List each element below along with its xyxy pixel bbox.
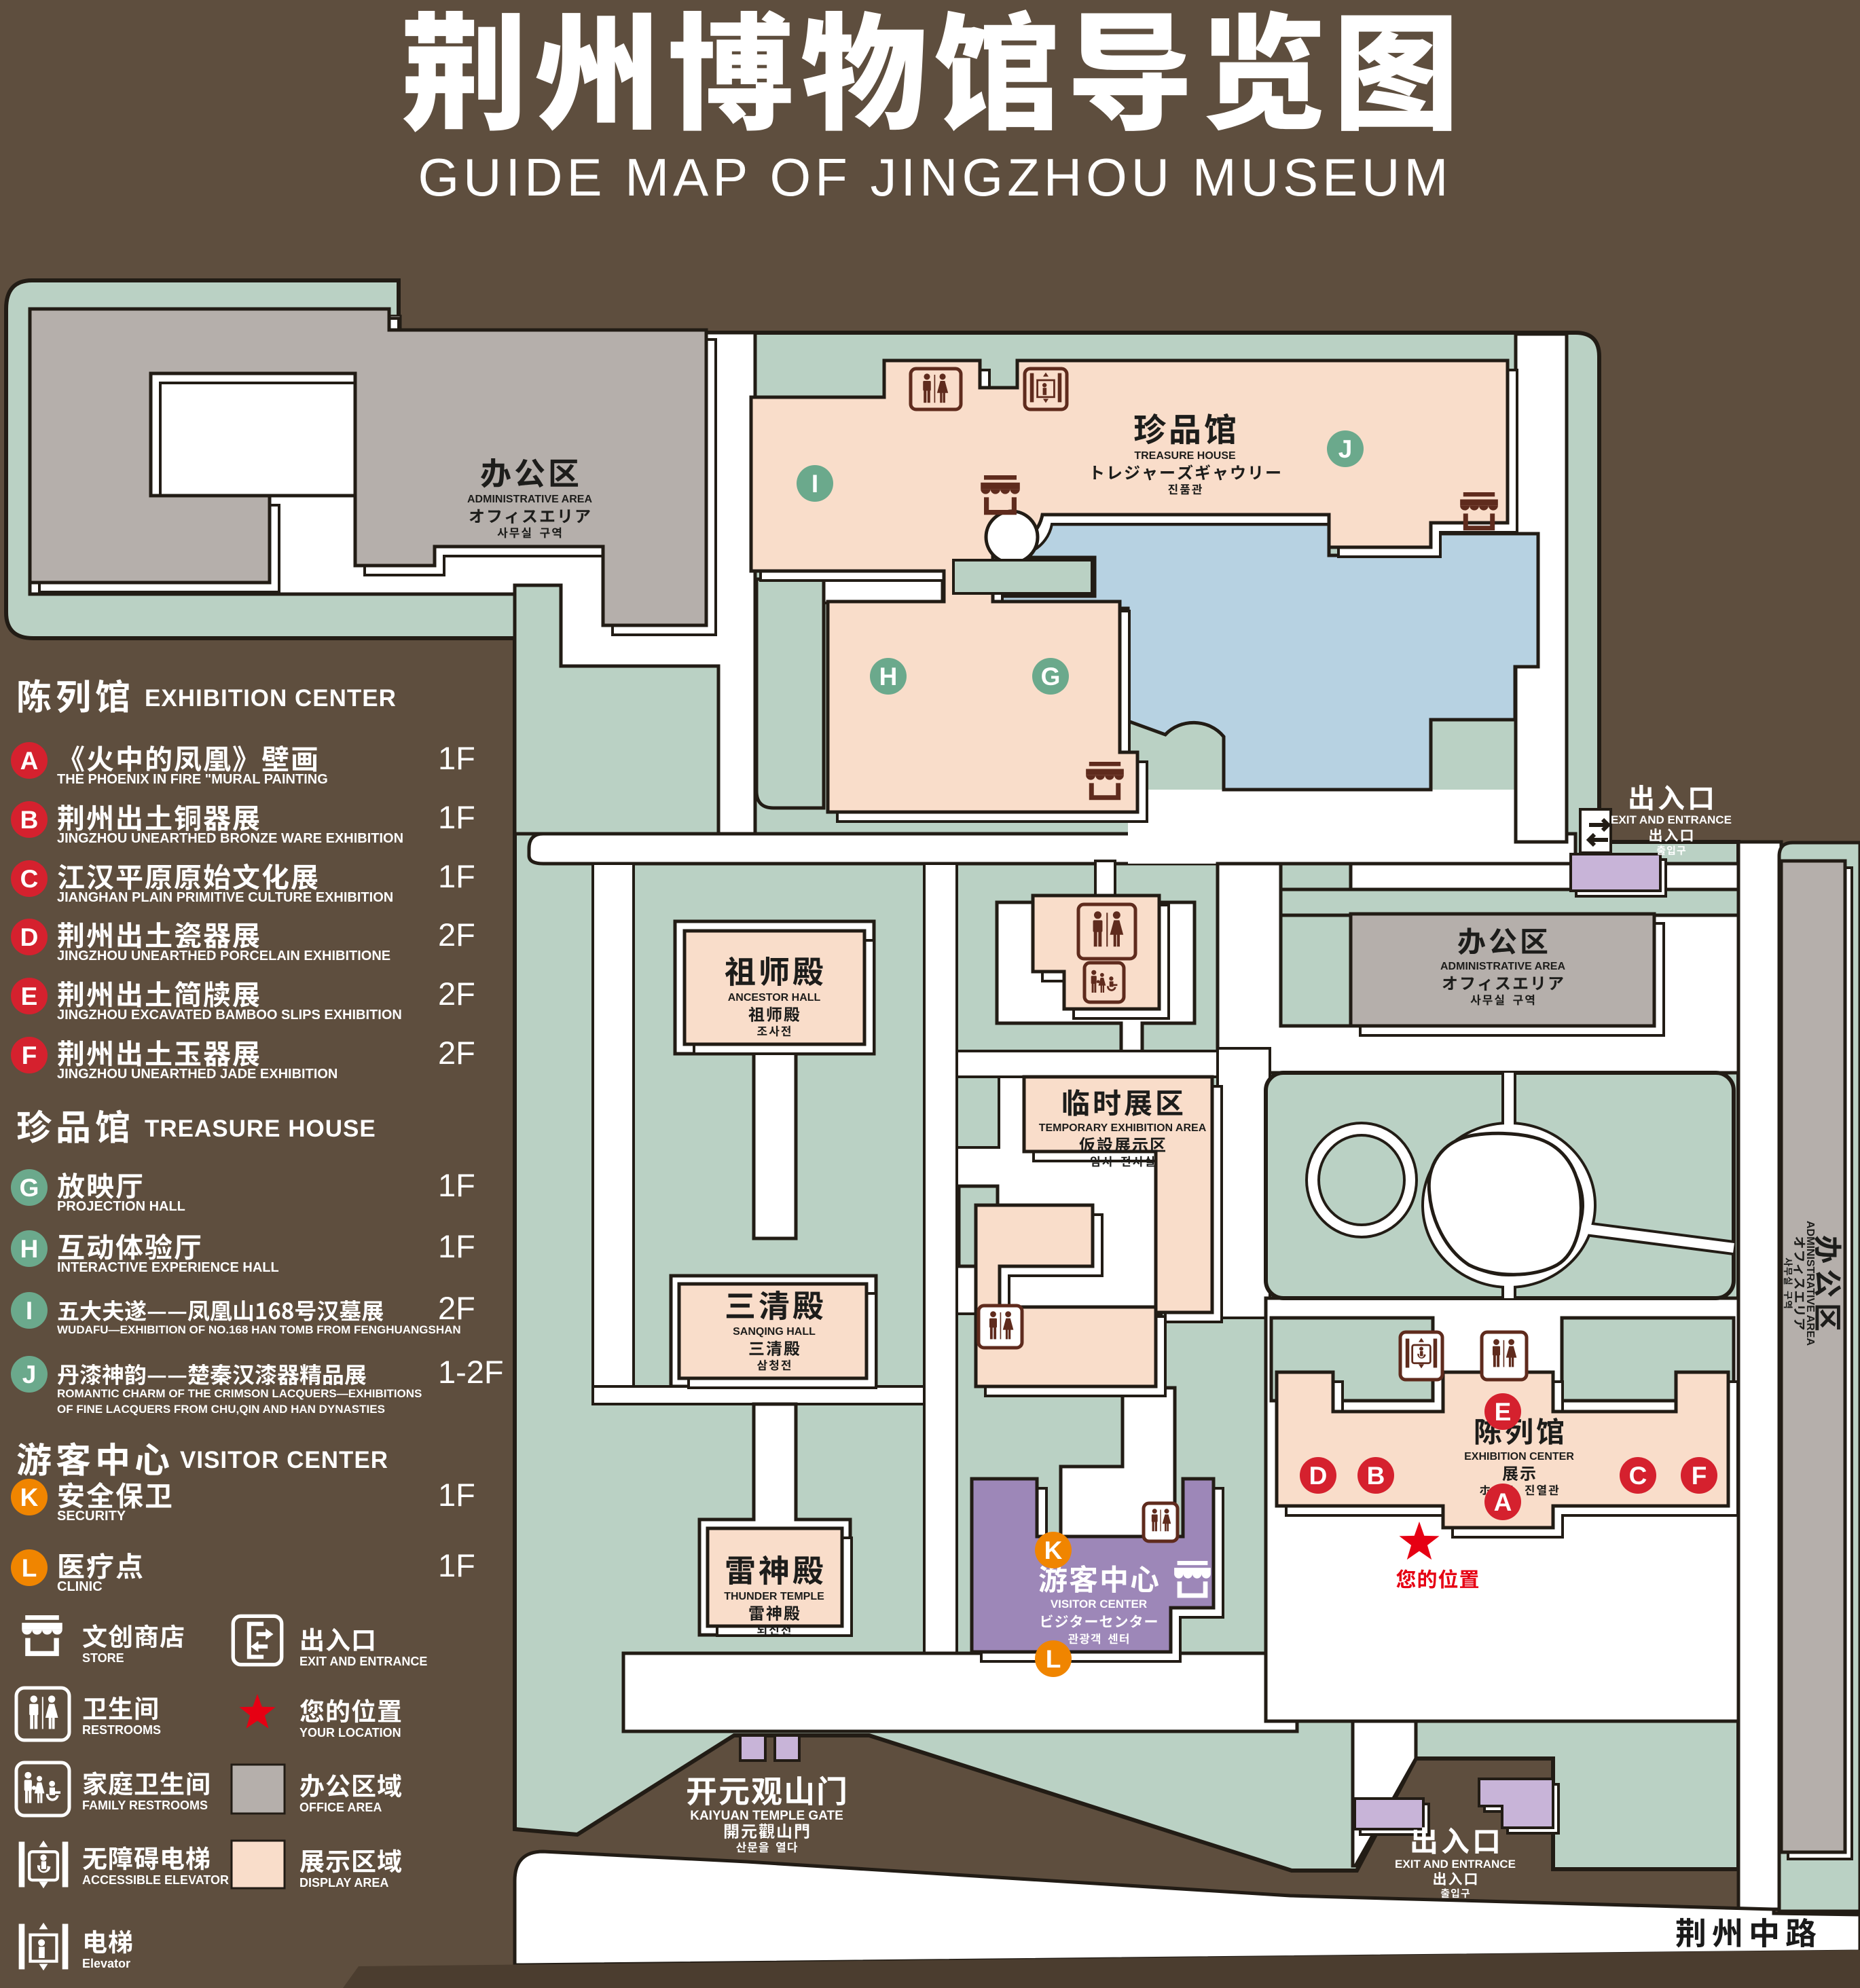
svg-text:C: C <box>20 865 39 893</box>
svg-text:EXIT AND ENTRANCE: EXIT AND ENTRANCE <box>1395 1858 1516 1871</box>
svg-text:SANQING HALL: SANQING HALL <box>733 1326 816 1338</box>
svg-text:D: D <box>20 923 39 951</box>
svg-text:F: F <box>1692 1462 1707 1490</box>
svg-text:ADMINISTRATIVE AREA: ADMINISTRATIVE AREA <box>1804 1221 1816 1346</box>
svg-text:FAMILY RESTROOMS: FAMILY RESTROOMS <box>82 1799 208 1812</box>
svg-text:OF FINE LACQUERS FROM CHU,QIN: OF FINE LACQUERS FROM CHU,QIN AND HAN DY… <box>57 1403 385 1416</box>
svg-text:YOUR LOCATION: YOUR LOCATION <box>299 1726 401 1739</box>
svg-text:JIANGHAN PLAIN PRIMITIVE CULTU: JIANGHAN PLAIN PRIMITIVE CULTURE EXHIBIT… <box>57 890 393 905</box>
svg-text:1F: 1F <box>438 740 475 776</box>
svg-text:K: K <box>1044 1536 1063 1564</box>
svg-text:RESTROOMS: RESTROOMS <box>82 1723 161 1737</box>
svg-text:PROJECTION HALL: PROJECTION HALL <box>57 1199 185 1214</box>
svg-text:JINGZHOU UNEARTHED BRONZE WARE: JINGZHOU UNEARTHED BRONZE WARE EXHIBITIO… <box>57 831 403 846</box>
svg-text:EXIT AND ENTRANCE: EXIT AND ENTRANCE <box>299 1655 427 1668</box>
svg-text:Elevator: Elevator <box>82 1957 130 1970</box>
svg-text:D: D <box>1309 1462 1328 1490</box>
svg-text:1F: 1F <box>438 1167 475 1203</box>
svg-text:ADMINISTRATIVE AREA: ADMINISTRATIVE AREA <box>1440 961 1565 972</box>
svg-text:1F: 1F <box>438 858 475 894</box>
svg-text:SECURITY: SECURITY <box>57 1509 126 1524</box>
svg-text:CLINIC: CLINIC <box>57 1579 103 1594</box>
svg-text:G: G <box>20 1174 39 1202</box>
svg-text:L: L <box>1046 1645 1061 1673</box>
svg-text:1-2F: 1-2F <box>438 1354 504 1390</box>
svg-text:A: A <box>20 747 39 775</box>
svg-text:J: J <box>1338 435 1353 463</box>
svg-text:JINGZHOU UNEARTHED JADE EXHIBI: JINGZHOU UNEARTHED JADE EXHIBITION <box>57 1067 338 1082</box>
svg-text:KAIYUAN TEMPLE GATE: KAIYUAN TEMPLE GATE <box>690 1809 843 1823</box>
svg-text:I: I <box>26 1297 33 1325</box>
svg-text:A: A <box>1494 1488 1512 1516</box>
svg-text:EXHIBITION CENTER: EXHIBITION CENTER <box>145 685 397 712</box>
svg-text:VISITOR CENTER: VISITOR CENTER <box>180 1447 388 1473</box>
svg-text:ADMINISTRATIVE AREA: ADMINISTRATIVE AREA <box>467 494 592 505</box>
svg-text:2F: 2F <box>438 917 475 953</box>
svg-text:2F: 2F <box>438 1035 475 1071</box>
svg-text:EXHIBITION CENTER: EXHIBITION CENTER <box>1464 1451 1574 1462</box>
svg-text:2F: 2F <box>438 1290 475 1326</box>
svg-text:F: F <box>22 1042 37 1069</box>
svg-text:VISITOR CENTER: VISITOR CENTER <box>1051 1598 1147 1610</box>
svg-text:J: J <box>22 1361 37 1388</box>
svg-text:ACCESSIBLE ELEVATOR: ACCESSIBLE ELEVATOR <box>82 1873 229 1887</box>
svg-text:B: B <box>20 806 39 834</box>
svg-text:STORE: STORE <box>82 1651 124 1665</box>
svg-text:TEMPORARY EXHIBITION AREA: TEMPORARY EXHIBITION AREA <box>1039 1122 1207 1134</box>
svg-text:JINGZHOU EXCAVATED BAMBOO SLIP: JINGZHOU EXCAVATED BAMBOO SLIPS EXHIBITI… <box>57 1008 402 1023</box>
svg-text:E: E <box>1495 1398 1512 1426</box>
svg-text:GUIDE MAP OF JINGZHOU MUSEUM: GUIDE MAP OF JINGZHOU MUSEUM <box>418 147 1453 207</box>
svg-text:TREASURE HOUSE: TREASURE HOUSE <box>145 1116 376 1142</box>
svg-text:K: K <box>20 1484 39 1511</box>
svg-text:2F: 2F <box>438 976 475 1012</box>
svg-text:EXIT AND ENTRANCE: EXIT AND ENTRANCE <box>1611 813 1732 826</box>
svg-text:C: C <box>1629 1462 1647 1490</box>
svg-text:G: G <box>1041 663 1061 691</box>
svg-text:THE PHOENIX IN FIRE "MURAL PAI: THE PHOENIX IN FIRE "MURAL PAINTING <box>57 772 328 787</box>
svg-text:H: H <box>879 663 898 691</box>
svg-text:1F: 1F <box>438 1228 475 1264</box>
svg-text:THUNDER TEMPLE: THUNDER TEMPLE <box>724 1591 824 1602</box>
svg-text:DISPLAY AREA: DISPLAY AREA <box>299 1876 388 1890</box>
svg-text:B: B <box>1367 1462 1385 1490</box>
svg-text:INTERACTIVE EXPERIENCE HALL: INTERACTIVE EXPERIENCE HALL <box>57 1260 279 1275</box>
svg-text:L: L <box>22 1554 37 1582</box>
svg-text:H: H <box>20 1235 39 1263</box>
svg-text:OFFICE AREA: OFFICE AREA <box>299 1801 382 1814</box>
svg-text:ROMANTIC CHARM OF THE CRIMSON: ROMANTIC CHARM OF THE CRIMSON LACQUERS—E… <box>57 1387 422 1400</box>
svg-text:1F: 1F <box>438 1477 475 1513</box>
svg-text:TREASURE HOUSE: TREASURE HOUSE <box>1134 450 1236 462</box>
svg-text:I: I <box>812 470 818 498</box>
svg-text:1F: 1F <box>438 799 475 835</box>
svg-text:WUDAFU—EXHIBITION OF NO.168 HA: WUDAFU—EXHIBITION OF NO.168 HAN TOMB FRO… <box>57 1323 461 1336</box>
svg-text:ANCESTOR HALL: ANCESTOR HALL <box>728 992 821 1004</box>
svg-text:1F: 1F <box>438 1547 475 1583</box>
svg-text:JINGZHOU UNEARTHED PORCELAIN E: JINGZHOU UNEARTHED PORCELAIN EXHIBITIONE <box>57 949 390 963</box>
svg-text:E: E <box>21 982 38 1010</box>
